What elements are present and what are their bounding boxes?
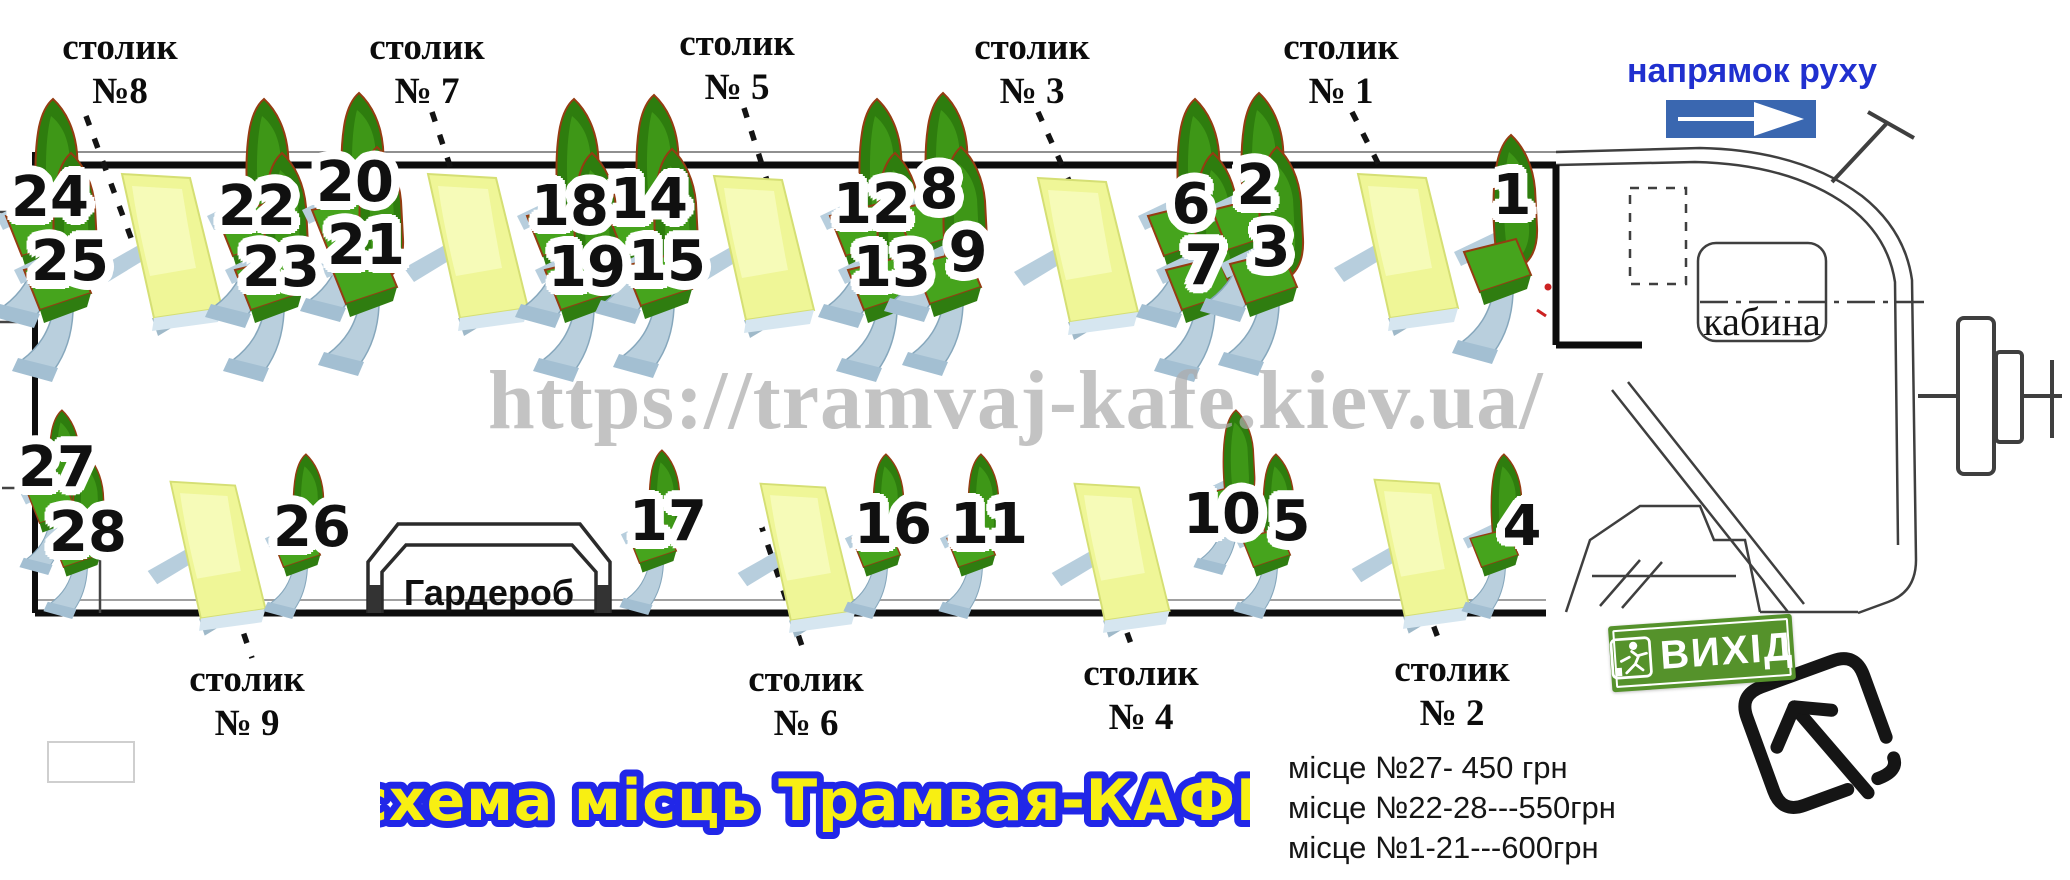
table-3	[1014, 178, 1138, 340]
price-line-1: місце №27- 450 грн	[1288, 750, 1568, 786]
wardrobe-label: Гардероб	[404, 572, 574, 614]
price-line-3: місце №1-21---600грн	[1288, 830, 1599, 866]
direction-of-travel-label: напрямок руху	[1627, 52, 1877, 91]
exit-sign: ВИХІД	[1608, 614, 1796, 693]
seat-number-25: 25	[31, 234, 109, 290]
tram-cafe-seating-diagram: https://tramvaj-kafe.kiev.ua/ столик№8 с…	[0, 0, 2070, 880]
seat-number-20: 20	[316, 155, 394, 211]
direction-arrow-icon	[1666, 100, 1816, 138]
table-label-3: столик№ 3	[974, 26, 1090, 113]
seat-number-16: 16	[854, 497, 932, 553]
table-label-6: столик№ 6	[748, 658, 864, 745]
exit-sign-text: ВИХІД	[1659, 627, 1795, 676]
table-label-1: столик№ 1	[1283, 26, 1399, 113]
table-label-4: столик№ 4	[1083, 652, 1199, 739]
table-label-2: столик№ 2	[1394, 648, 1510, 735]
seat-number-4: 4	[1503, 499, 1542, 555]
seat-number-23: 23	[242, 240, 320, 296]
seat-number-21: 21	[327, 218, 405, 274]
seat-number-11: 11	[950, 497, 1028, 553]
cabin-label: кабина	[1703, 298, 1821, 345]
seat-number-2: 2	[1237, 158, 1276, 214]
price-line-2: місце №22-28---550грн	[1288, 790, 1616, 826]
running-man-icon	[1609, 634, 1654, 683]
seat-number-28: 28	[49, 505, 127, 561]
seat-number-9: 9	[949, 225, 988, 281]
seat-number-8: 8	[920, 162, 959, 218]
seat-number-13: 13	[853, 240, 931, 296]
seat-number-5: 5	[1272, 494, 1311, 550]
seat-number-24: 24	[11, 170, 89, 226]
seat-number-14: 14	[610, 172, 688, 228]
table-label-9: столик№ 9	[189, 658, 305, 745]
table-5	[690, 176, 814, 338]
seat-number-6: 6	[1172, 177, 1211, 233]
seat-number-3: 3	[1252, 220, 1291, 276]
diagram-title-art: схема місць Трамвая-КАФЕ	[380, 750, 1250, 850]
seat-number-7: 7	[1185, 238, 1224, 294]
table-label-8: столик№8	[62, 26, 178, 113]
seat-number-26: 26	[273, 500, 351, 556]
seat-number-27: 27	[18, 440, 96, 496]
cab-drawing	[1537, 112, 2062, 613]
table-1	[1334, 174, 1458, 336]
seat-number-10: 10	[1183, 487, 1261, 543]
seat-number-19: 19	[548, 240, 626, 296]
seat-number-22: 22	[218, 179, 296, 235]
diagram-title: схема місць Трамвая-КАФЕ	[380, 768, 1250, 834]
watermark-url: https://tramvaj-kafe.kiev.ua/	[488, 352, 1544, 449]
seat-number-1: 1	[1493, 168, 1532, 224]
seat-number-18: 18	[531, 179, 609, 235]
seat-number-15: 15	[628, 234, 706, 290]
seat-number-17: 17	[629, 494, 707, 550]
table-7	[404, 174, 528, 336]
table-8	[98, 174, 222, 336]
table-label-5: столик№ 5	[679, 22, 795, 109]
seat-number-12: 12	[833, 177, 911, 233]
table-label-7: столик№ 7	[369, 26, 485, 113]
